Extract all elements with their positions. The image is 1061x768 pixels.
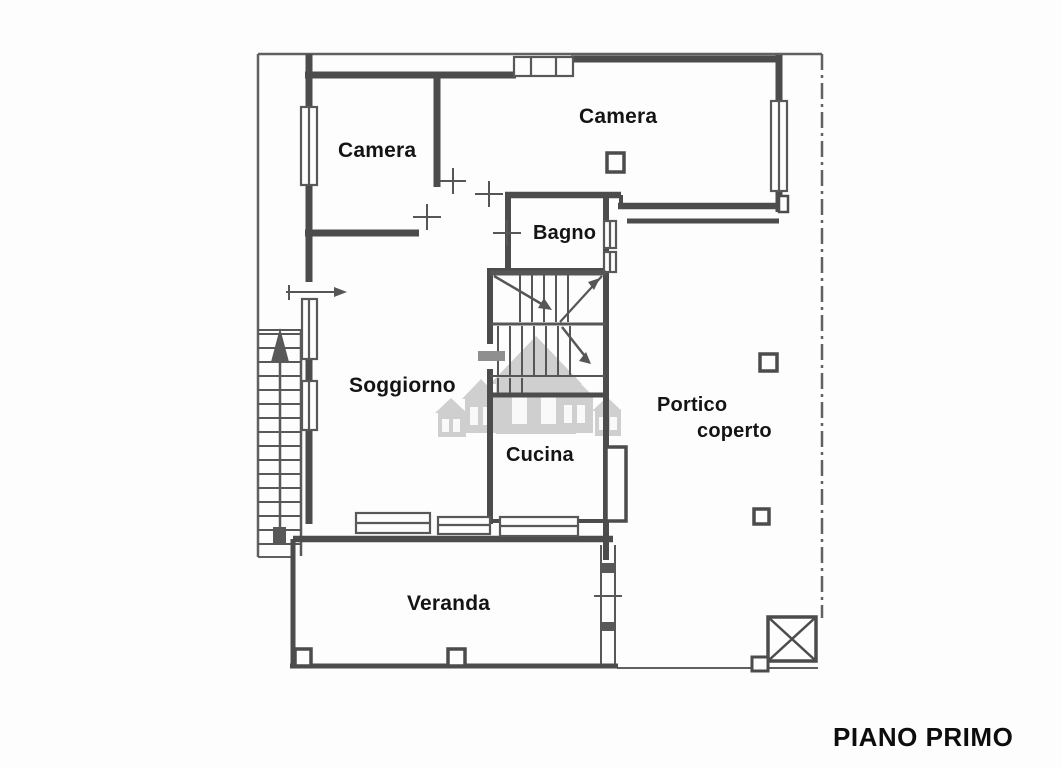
room-label-cucina: Cucina: [506, 444, 574, 467]
wall-notch: [779, 196, 788, 212]
room-label-bagno: Bagno: [533, 222, 596, 245]
room-label-veranda: Veranda: [407, 592, 490, 616]
internal-staircase: [478, 273, 606, 393]
room-label-camera-right: Camera: [579, 105, 657, 129]
stair-door-leaf: [478, 351, 505, 361]
portico-post: [760, 354, 777, 371]
veranda-post: [295, 649, 311, 666]
veranda-right-wall: [594, 545, 622, 664]
room-label-portico-line2: coperto: [697, 420, 772, 443]
shaft-box-icon: [752, 617, 816, 671]
floor-plan-canvas: Camera Camera Bagno Soggiorno Cucina Por…: [0, 0, 1061, 768]
top-wall-window: [514, 57, 573, 76]
door-marks: [413, 168, 521, 246]
camera-pillar: [607, 153, 624, 172]
houses-watermark-icon: [435, 336, 622, 437]
external-staircase: [258, 328, 301, 556]
entrance-arrow-icon: [286, 285, 347, 300]
veranda-post: [448, 649, 465, 666]
room-label-soggiorno: Soggiorno: [349, 374, 456, 398]
room-label-portico-line1: Portico: [657, 394, 727, 417]
floor-title: PIANO PRIMO: [833, 722, 1013, 753]
floor-plan-drawing: [0, 0, 1061, 768]
portico-post: [754, 509, 769, 524]
room-label-camera-left: Camera: [338, 139, 416, 163]
stair-arrow-turn-icon: [579, 352, 591, 364]
